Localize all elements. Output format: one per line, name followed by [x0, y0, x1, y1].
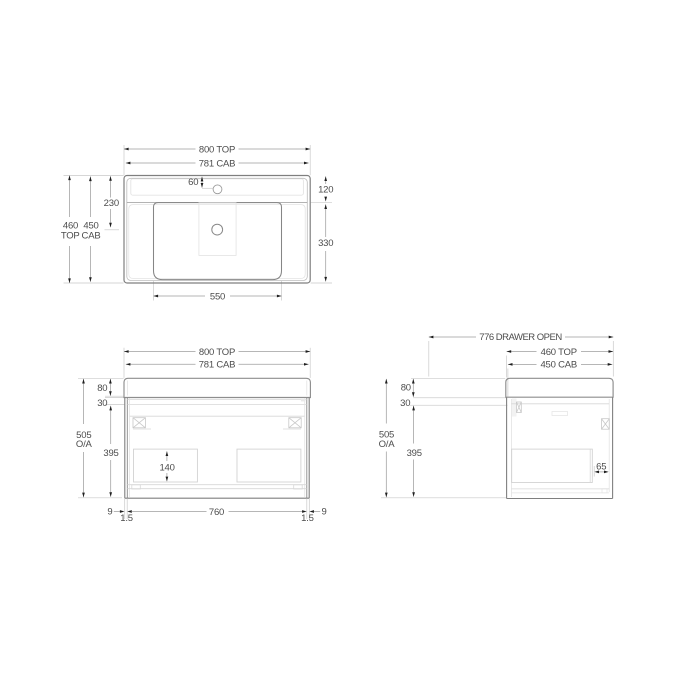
svg-text:TOP: TOP [61, 231, 80, 242]
svg-text:781 CAB: 781 CAB [199, 158, 236, 169]
svg-text:30: 30 [97, 398, 107, 409]
svg-text:330: 330 [318, 238, 333, 249]
svg-text:1.5: 1.5 [301, 513, 314, 524]
svg-text:230: 230 [104, 198, 119, 209]
svg-text:9: 9 [322, 507, 327, 518]
svg-text:760: 760 [209, 507, 224, 518]
svg-text:O/A: O/A [379, 439, 396, 450]
svg-text:395: 395 [103, 448, 118, 459]
svg-text:30: 30 [400, 398, 410, 409]
svg-text:450 CAB: 450 CAB [540, 360, 577, 371]
svg-text:80: 80 [401, 382, 411, 393]
svg-text:460 TOP: 460 TOP [541, 347, 577, 358]
svg-text:140: 140 [159, 463, 174, 474]
svg-text:800 TOP: 800 TOP [199, 144, 235, 155]
svg-text:O/A: O/A [76, 439, 93, 450]
svg-text:CAB: CAB [82, 231, 101, 242]
svg-text:1.5: 1.5 [120, 513, 133, 524]
svg-text:395: 395 [407, 448, 422, 459]
svg-text:120: 120 [318, 185, 333, 196]
svg-text:80: 80 [97, 383, 107, 394]
svg-text:800 TOP: 800 TOP [199, 347, 235, 358]
svg-text:776 DRAWER OPEN: 776 DRAWER OPEN [479, 332, 562, 343]
svg-text:60: 60 [188, 177, 198, 188]
svg-text:550: 550 [210, 291, 225, 302]
svg-text:9: 9 [107, 507, 112, 518]
svg-text:65: 65 [596, 462, 606, 473]
svg-text:781 CAB: 781 CAB [199, 360, 236, 371]
